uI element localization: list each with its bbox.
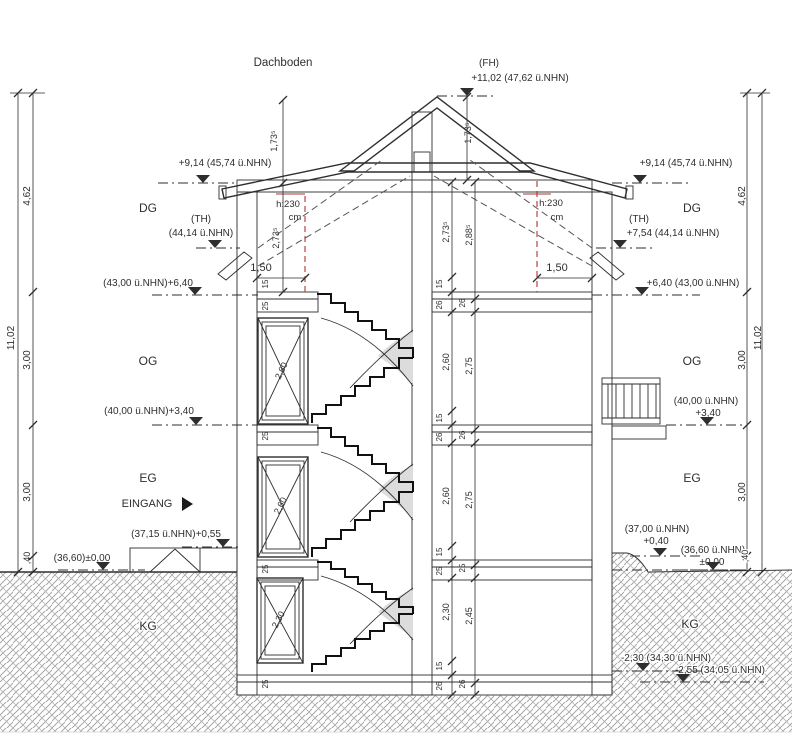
floor-slabs [237, 292, 612, 695]
stair-flight-og-upper [317, 294, 413, 358]
marker-340-left [152, 417, 258, 425]
slab-dg-15: 15 [435, 279, 444, 288]
ground-right [612, 553, 792, 732]
marker-th-right-triangle-icon [613, 240, 627, 248]
slab-dg-26a: 26 [435, 300, 444, 309]
marker-eaves-right-triangle-icon [633, 175, 647, 183]
slab-og-26b: 26 [458, 430, 467, 439]
slab-kg-26a: 26 [435, 681, 444, 690]
marker-th-right [596, 240, 652, 248]
ridge-purlin [414, 152, 430, 172]
slab-eg-floor [257, 560, 592, 580]
dim-230-kg: 2,30 [441, 603, 451, 621]
marker-640-left-triangle-icon [188, 287, 202, 295]
dim-462-left: 4,62 [22, 186, 33, 206]
ground-left [0, 572, 237, 732]
roof-gable [340, 97, 534, 171]
th-value-left: (44,14 ü.NHN) [169, 228, 233, 239]
story-eg-right: EG [683, 471, 700, 485]
slab-eg-25a: 25 [435, 566, 444, 575]
marker-000-right [676, 562, 746, 570]
story-og-left: OG [139, 354, 158, 368]
stair-flight-eg-upper [317, 428, 413, 492]
balcony-railing [602, 378, 660, 424]
slab-dg-25w: 25 [261, 301, 270, 310]
wall-right [592, 192, 612, 695]
slab-og-26a: 26 [435, 432, 444, 441]
ground-earth [0, 553, 792, 732]
marker-th-left [196, 240, 240, 248]
dim-273-left: 2,73⁵ [271, 227, 281, 249]
ridge-fh-tag: (FH) [479, 58, 499, 69]
marker-055 [182, 539, 240, 547]
slab-kg-15: 15 [435, 661, 444, 670]
marker-fh-triangle-icon [460, 88, 474, 96]
entrance-label: EINGANG [122, 498, 173, 510]
dim-150-left: 1,50 [250, 262, 271, 274]
eave-strut-left [218, 252, 252, 280]
story-dg-left: DG [139, 201, 157, 215]
marker-th-left-triangle-icon [208, 240, 222, 248]
dim-260-og: 2,60 [441, 353, 451, 371]
dim-150-right: 1,50 [546, 262, 567, 274]
marker-fh [437, 88, 497, 96]
dim-245-kg: 2,45 [464, 607, 474, 625]
dim-total-left: 11,02 [6, 325, 17, 350]
dim-total-right: 11,02 [753, 325, 764, 350]
headroom-lines [276, 181, 551, 292]
dim-173-left: 1,73⁵ [269, 130, 279, 152]
level-000-right-1: (36,60 ü.NHN) [681, 545, 745, 556]
story-og-right: OG [683, 354, 702, 368]
dim-40-left: ,40 [22, 552, 32, 565]
level-640-right: +6,40 (43,00 ü.NHN) [647, 278, 740, 289]
dim-300-left-og: 3,00 [22, 350, 33, 370]
entrance-arrow-icon [182, 497, 193, 511]
marker-eaves-left-triangle-icon [196, 175, 210, 183]
marker-eaves-right [612, 175, 688, 183]
stair-flight-kg-upper [317, 562, 413, 614]
level-640-left: (43,00 ü.NHN)+6,40 [103, 278, 193, 289]
ground-under-building [237, 695, 612, 732]
headroom-left-2: cm [289, 212, 302, 223]
balcony-slab [612, 426, 666, 439]
dim-300-right-eg: 3,00 [737, 482, 748, 502]
th-tag-left: (TH) [191, 214, 211, 225]
slab-dg-15w: 15 [261, 279, 270, 288]
stair-flight-og-lower [312, 358, 413, 423]
wall-middle [412, 112, 432, 695]
headroom-right-1: h:230 [539, 198, 563, 209]
headroom-left-1: h:230 [276, 199, 300, 210]
dim-40-right: ,40 [740, 550, 750, 563]
ridge-fh-value: +11,02 (47,62 ü.NHN) [471, 73, 568, 84]
headroom-right-2: cm [551, 212, 564, 223]
window-og-height: 2,60 [273, 361, 290, 381]
marker-340-left-triangle-icon [189, 417, 203, 425]
marker-340-right [666, 417, 744, 425]
dim-275-og: 2,75 [464, 357, 474, 375]
level-055: (37,15 ü.NHN)+0,55 [131, 529, 221, 540]
th-tag-right: (TH) [629, 214, 649, 225]
level-040-right-2: +0,40 [643, 536, 669, 547]
level-340-left: (40,00 ü.NHN)+3,40 [104, 406, 194, 417]
marker-000-left-triangle-icon [96, 562, 110, 570]
fascia-right [626, 186, 633, 199]
marker-055-triangle-icon [216, 539, 230, 547]
section-svg: Dachboden(FH)+11,02 (47,62 ü.NHN)+9,14 (… [0, 0, 792, 753]
eaves-level-left: +9,14 (45,74 ü.NHN) [179, 158, 272, 169]
story-eg-left: EG [139, 471, 156, 485]
dim-260-eg: 2,60 [441, 487, 451, 505]
dim-275-eg: 2,75 [464, 491, 474, 509]
marker-eaves-left [158, 175, 237, 183]
slab-kg-26b: 26 [458, 679, 467, 688]
story-kg-right: KG [681, 617, 698, 631]
level-340-right-1: (40,00 ü.NHN) [674, 396, 738, 407]
level-040-right-1: (37,00 ü.NHN) [625, 524, 689, 535]
marker-040-right-triangle-icon [653, 548, 667, 556]
eaves-level-right: +9,14 (45,74 ü.NHN) [640, 158, 733, 169]
attic-title: Dachboden [254, 57, 313, 69]
slab-og-floor [257, 425, 592, 445]
story-kg-left: KG [139, 619, 156, 633]
dim-273-mid: 2,73⁵ [441, 221, 451, 243]
slab-eg-25b: 25 [458, 563, 467, 572]
marker-640-right-triangle-icon [635, 287, 649, 295]
dim-300-right-og: 3,00 [737, 350, 748, 370]
th-value-right: +7,54 (44,14 ü.NHN) [627, 228, 720, 239]
story-dg-right: DG [683, 201, 701, 215]
level-230-kg: -2,30 (34,30 ü.NHN) [621, 653, 711, 664]
slab-kg-floor [237, 675, 612, 695]
building-section-drawing: Dachboden(FH)+11,02 (47,62 ü.NHN)+9,14 (… [0, 0, 792, 753]
dim-288-mid: 2,88⁵ [464, 224, 474, 246]
slab-dg-floor [257, 292, 592, 312]
attic-floor [237, 180, 592, 192]
slab-kg-25w: 25 [261, 679, 270, 688]
slab-dg-26b: 26 [458, 298, 467, 307]
slab-og-15: 15 [435, 413, 444, 422]
entrance-steps [130, 548, 237, 572]
slab-eg-15: 15 [435, 547, 444, 556]
staircase [312, 294, 413, 672]
marker-340-right-triangle-icon [700, 417, 714, 425]
stair-flight-eg-lower [312, 492, 413, 557]
slab-og-25w: 25 [261, 431, 270, 440]
dim-173-right: 1,73⁵ [463, 122, 473, 144]
dim-462-right: 4,62 [737, 186, 748, 206]
dim-300-left-eg: 3,00 [22, 482, 33, 502]
stair-flight-kg-lower [312, 614, 413, 672]
slab-eg-25w: 25 [261, 564, 270, 573]
